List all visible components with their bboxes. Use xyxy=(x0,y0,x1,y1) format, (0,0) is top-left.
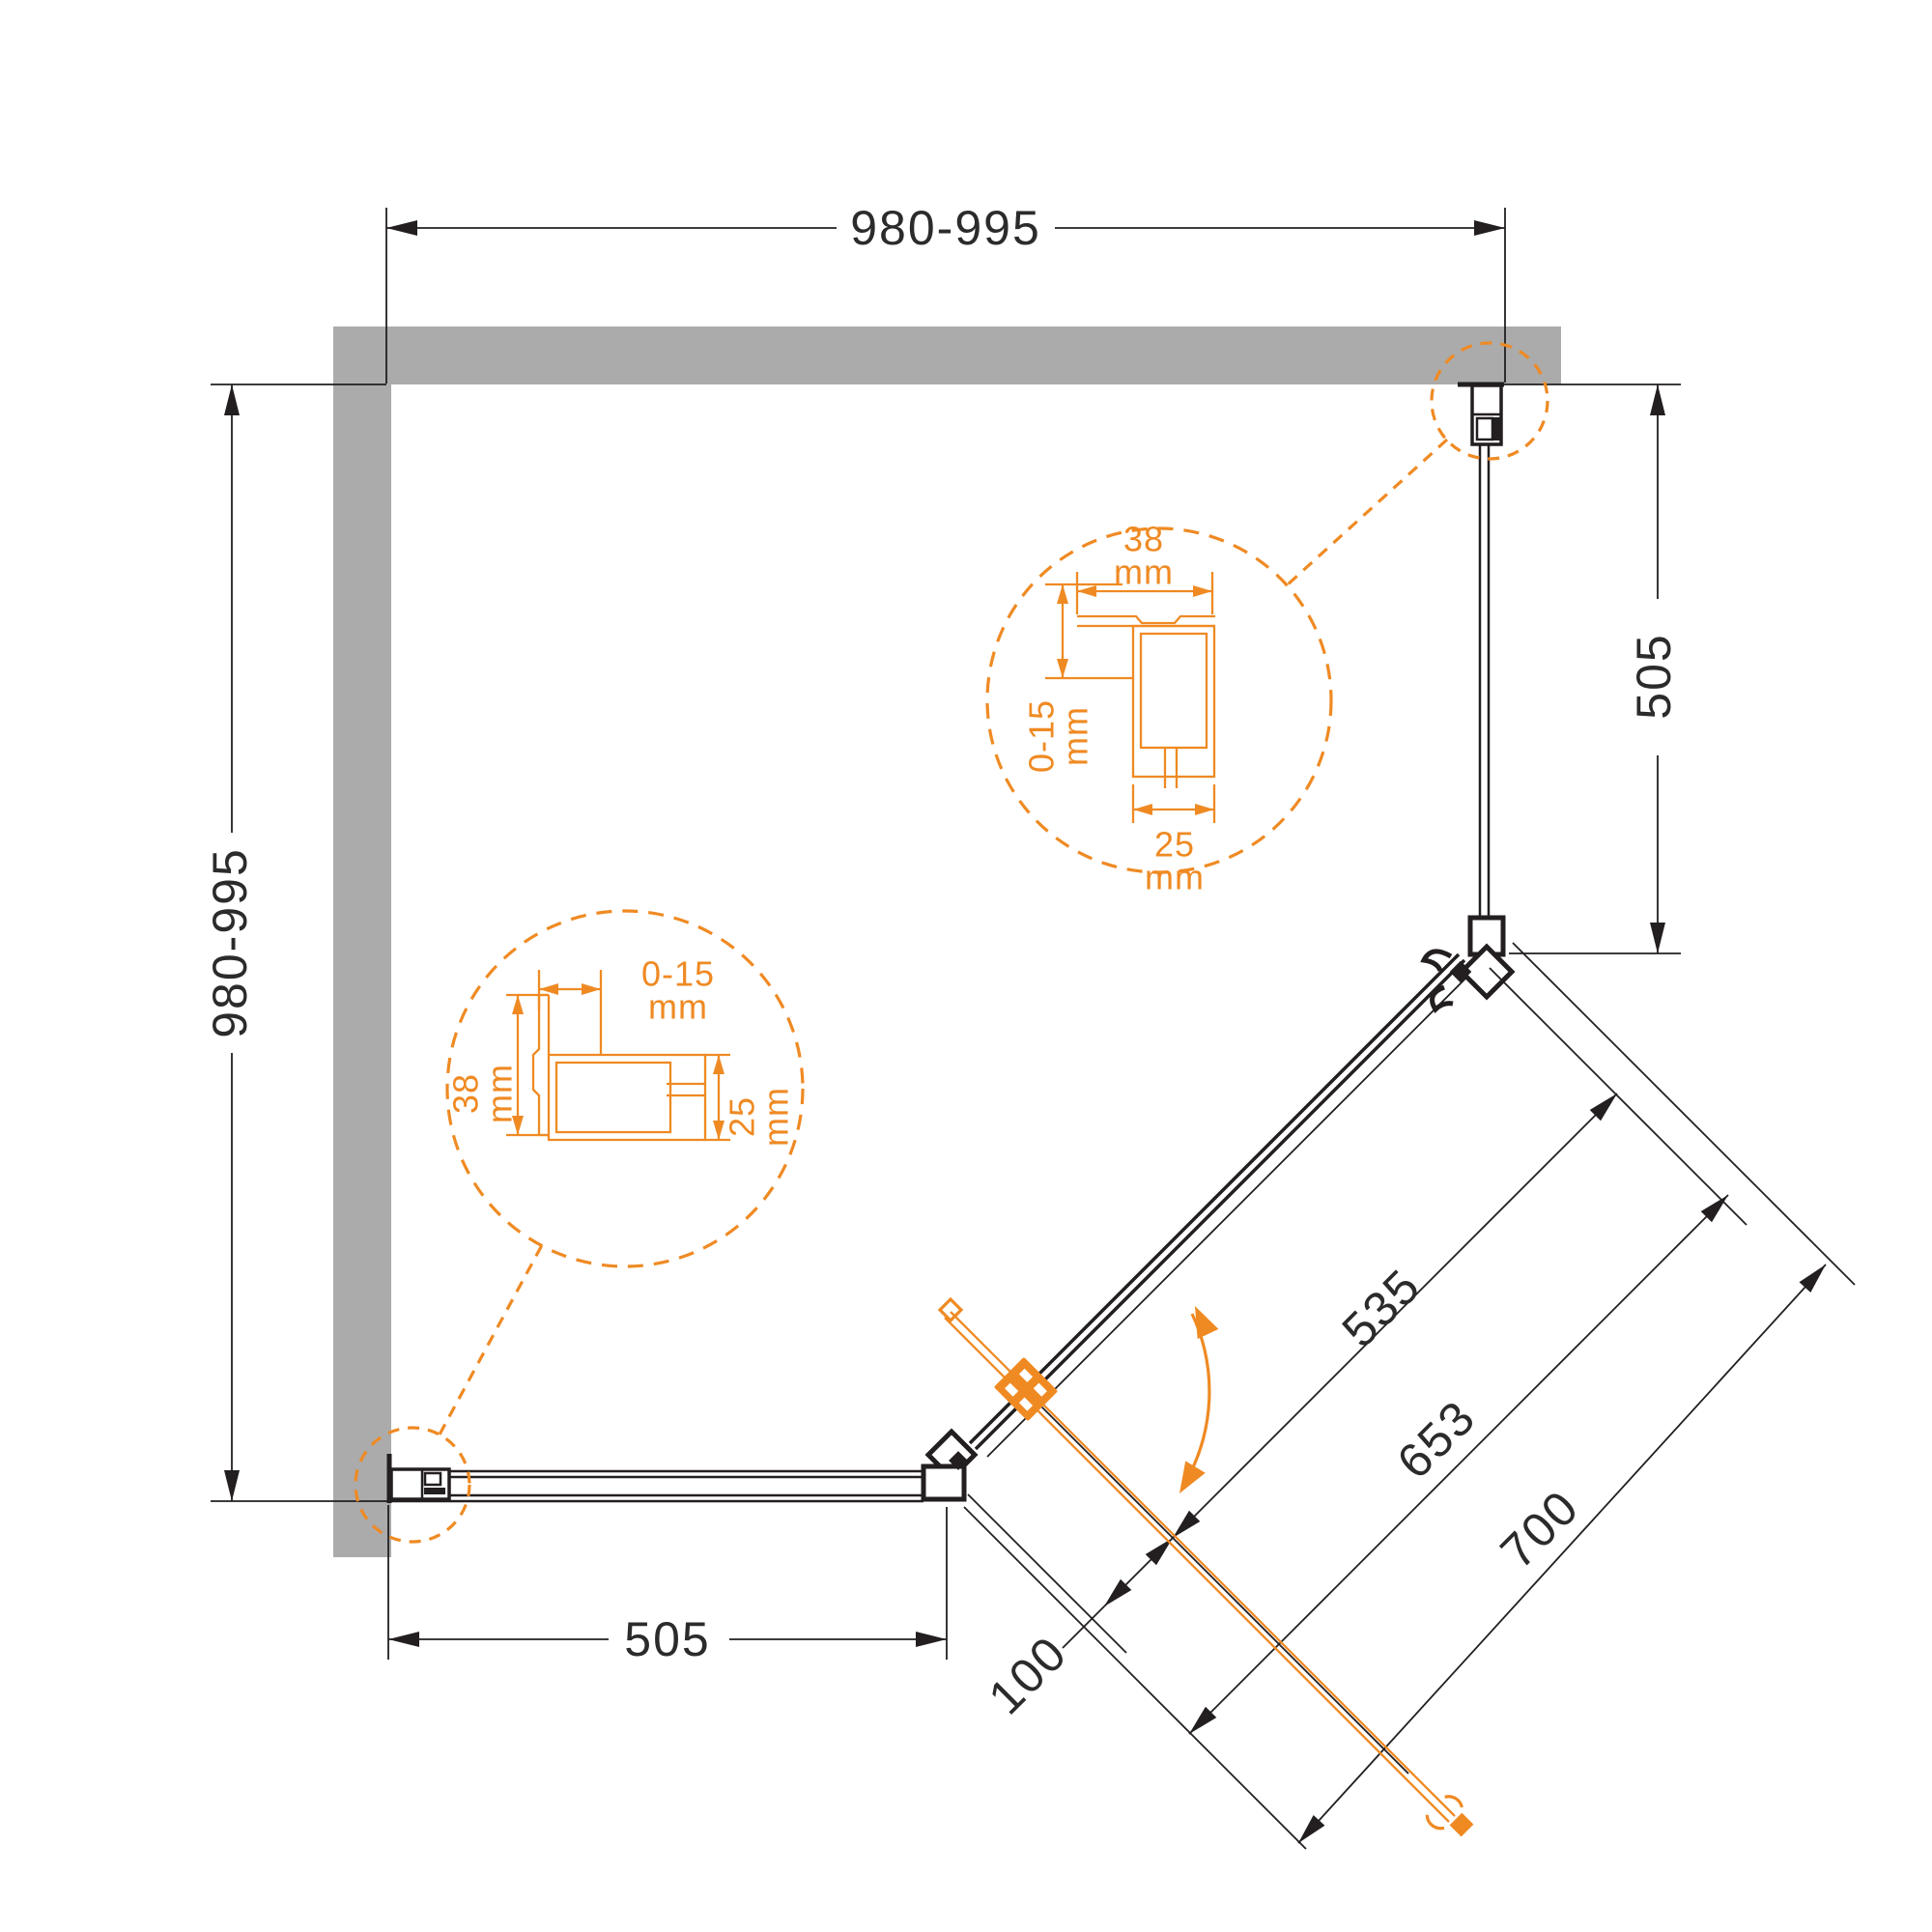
door-handle xyxy=(1424,1792,1477,1845)
right-fixed-panel xyxy=(1458,384,1504,919)
dim-top-label: 980-995 xyxy=(850,201,1041,255)
swing-arc xyxy=(1170,1301,1219,1499)
walls xyxy=(333,327,1561,1557)
dim-right-label: 505 xyxy=(1627,633,1681,719)
detail-right-adjust-unit: mm xyxy=(1056,706,1095,766)
dim-left-label: 980-995 xyxy=(203,847,257,1038)
detail-left-depth-unit: mm xyxy=(756,1087,796,1147)
wall-left xyxy=(333,327,391,1557)
dim-door-opening-label: 653 xyxy=(1387,1390,1487,1490)
corner-connector-top xyxy=(1424,918,1512,1009)
detail-circle-right: 38 mm 0-15 mm 25 mm xyxy=(987,520,1331,897)
detail-right-width-unit: mm xyxy=(1114,553,1174,592)
detail-left-adjust-unit: mm xyxy=(648,987,708,1027)
detail-left-width-unit: mm xyxy=(480,1064,520,1123)
wall-profile-bottom xyxy=(389,1454,449,1503)
corner-connector-bottom xyxy=(923,1432,975,1499)
wall-top xyxy=(333,327,1561,384)
shower-enclosure-plan: 980-995 980-995 505 505 xyxy=(0,0,1932,1932)
dim-door-glass-label: 535 xyxy=(1332,1259,1432,1358)
dimension-door-diagonals: 100 535 653 700 xyxy=(964,943,1855,1849)
detail-right-depth-unit: mm xyxy=(1145,858,1205,897)
detail-circle-left: 0-15 mm 38 mm 25 mm xyxy=(446,911,804,1266)
dimension-bottom: 505 xyxy=(388,1505,947,1666)
wall-profile-top xyxy=(1458,384,1504,444)
dim-pivot-offset-label: 100 xyxy=(979,1626,1078,1725)
dim-bottom-label: 505 xyxy=(624,1612,710,1666)
door-open-position xyxy=(940,1299,1478,1846)
dimension-right: 505 xyxy=(1504,384,1681,953)
dim-door-total-label: 700 xyxy=(1491,1480,1590,1579)
door-end-cap xyxy=(940,1299,961,1321)
